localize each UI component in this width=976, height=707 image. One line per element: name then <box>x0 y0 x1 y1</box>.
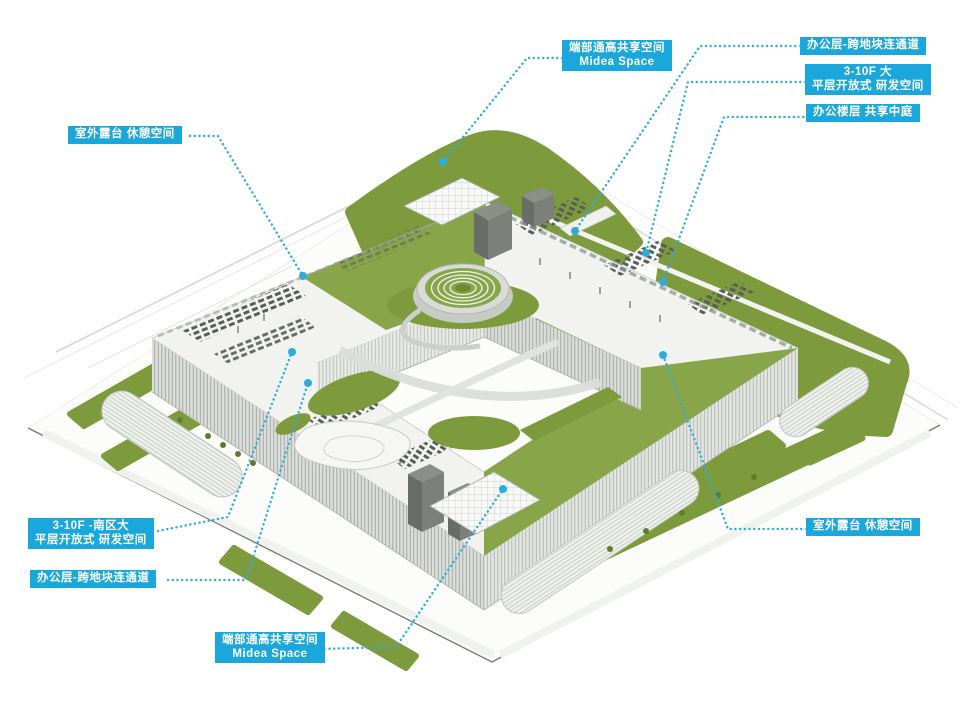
callout-line: 3-10F 大 <box>844 66 892 80</box>
callout-line: 办公楼层 共享中庭 <box>813 106 913 120</box>
callout-line: 端部通高共享空间 <box>222 634 318 648</box>
callout-rd-space-bottom-left: 3-10F -南区大 平层开放式 研发空间 <box>28 518 154 549</box>
callout-atrium-right: 办公楼层 共享中庭 <box>806 104 920 122</box>
callout-office-corridor-top-right: 办公层-跨地块连通道 <box>800 37 926 55</box>
callout-line: 办公层-跨地块连通道 <box>37 572 149 586</box>
callout-line: 平层开放式 研发空间 <box>35 534 147 548</box>
callout-line: 室外露台 休憩空间 <box>813 520 913 534</box>
callout-office-corridor-bottom-left: 办公层-跨地块连通道 <box>30 570 156 588</box>
callout-line: 室外露台 休憩空间 <box>75 128 175 142</box>
callout-rd-space-right: 3-10F 大 平层开放式 研发空间 <box>805 64 931 95</box>
callout-terrace-left: 室外露台 休憩空间 <box>68 126 182 144</box>
architectural-axonometric-diagram: 端部通高共享空间 Midea Space 办公层-跨地块连通道 3-10F 大 … <box>0 0 976 707</box>
callout-shared-space-bottom: 端部通高共享空间 Midea Space <box>215 632 325 663</box>
callout-line: 端部通高共享空间 <box>569 42 665 56</box>
callout-line: Midea Space <box>579 56 654 70</box>
callout-line: Midea Space <box>232 648 307 662</box>
callout-shared-space-top: 端部通高共享空间 Midea Space <box>562 40 672 71</box>
callout-line: 办公层-跨地块连通道 <box>807 39 919 53</box>
callout-terrace-bottom-right: 室外露台 休憩空间 <box>806 518 920 536</box>
callout-line: 平层开放式 研发空间 <box>812 80 924 94</box>
callout-line: 3-10F -南区大 <box>53 520 130 534</box>
